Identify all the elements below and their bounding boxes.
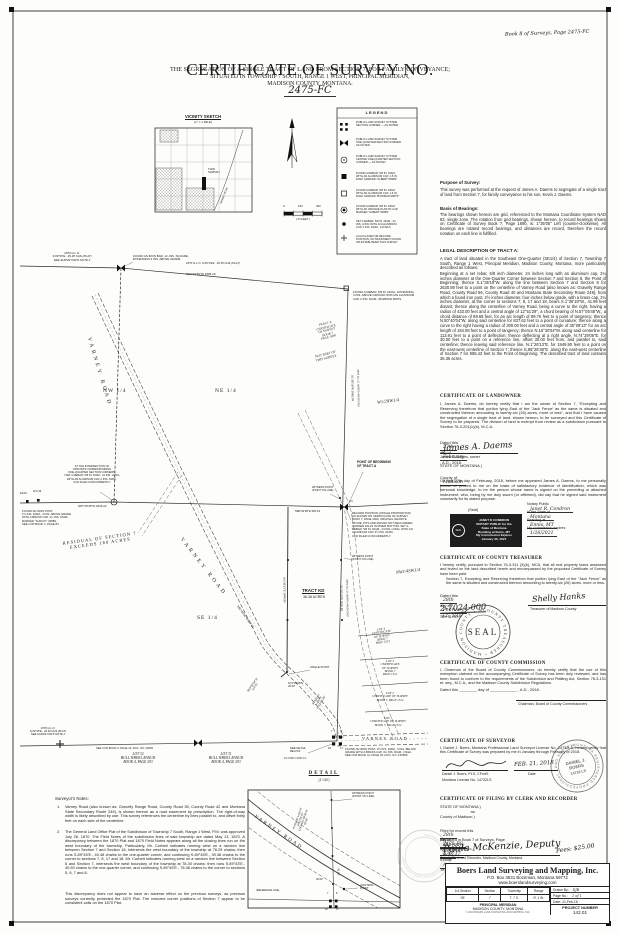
pob-label: POINT OF BEGINNING OF TRACT A — [357, 461, 391, 468]
notary-stamp-text: JANET R CONDRON NOTARY PUBLIC for the St… — [468, 519, 520, 542]
company-website: www.boerslandsurveying.com — [446, 880, 609, 887]
legal-intro: A tract of land situated in the Southeas… — [440, 257, 606, 271]
company-name: Boers Land Surveying and Mapping, Inc. — [446, 866, 609, 875]
subtitle-1: THE SEGREGATION OF A SINGLE TRACT OF LAN… — [0, 66, 620, 73]
seal-placeholder-label: (Seal) — [468, 508, 478, 512]
witness-point-label-1: WITNESS POINT (POINT ON LINE) — [312, 486, 333, 492]
treasurer-title: CERTIFICATE OF COUNTY TREASURER — [440, 556, 606, 562]
treasurer-body-1: I hereby certify, pursuant to Section 76… — [440, 563, 606, 576]
detail-drawing — [244, 780, 404, 922]
surveyor-date-rule — [514, 770, 558, 771]
sixteenth-corner-e: E1/16 — [20, 492, 27, 495]
treasurer-seal: COUNTY TREASURER • MADISON COUNTY • MONT… — [0, 0, 510, 659]
val-quarter-section: SE — [447, 895, 479, 902]
landowner-title: CERTIFICATE OF LANDOWNER — [440, 394, 606, 400]
svg-text:DANIEL J. BOERS: DANIEL J. BOERS 14732 LS — [565, 757, 589, 777]
notary-value-handwritten: 1/26/2021 — [527, 531, 557, 537]
filed-pre: Filed for record this — [440, 828, 473, 833]
legend-item-text: FOUND A REBAR, 5/8 IN. DIAM. WITH AN ALU… — [356, 189, 399, 198]
lot2-label: LOT 2 CERTIFICATE OF SURVEY BOOK 7, PAGE… — [372, 692, 408, 702]
sixteenth-corner-w: W 1/16 — [33, 490, 41, 493]
legend-symbols — [340, 123, 348, 241]
found-post-se-note: FOUND AN IRON POST, 2½ INS. DIAM., 4 INS… — [345, 748, 416, 758]
title-block: Boers Land Surveying and Mapping, Inc. P… — [445, 863, 610, 924]
legend-item-text: SET A REBAR, 5/8 IN. DIAM., 24 INS. LONG… — [356, 220, 396, 229]
landowner-signature-label: James A. Daems, owner — [440, 455, 480, 459]
detail-witness-label: WITNESS POINT (POINT ON LINE) — [352, 792, 374, 798]
glo-chains-lower: 1870 G.L.O. NORTH 40.00 CHS — [345, 579, 349, 616]
legend-item-text: FOUND A REBAR, 5/8 IN. DIAM. WITH AN ORA… — [356, 205, 398, 214]
detail-title: DETAIL — [309, 771, 340, 777]
filing-county: County of Madison ) — [440, 815, 475, 820]
scalebar-unit: ( IN FEET ) — [296, 218, 310, 221]
chairman-label: Chairman, Board of County Commissioners — [518, 702, 587, 706]
purpose-body: This survey was performed at the request… — [440, 188, 606, 197]
found-rebar-ne-note: FOUND A REBAR, 5/8 IN. DIAM., EXTENDING … — [353, 291, 414, 301]
lot3-label: LOT 3 CERTIFICATE OF SURVEY BOOK 7 PAGE … — [381, 660, 400, 677]
legend-item-text: FOUND A REBAR, 5/8 IN. DIAM. WITH AN ALU… — [356, 172, 397, 181]
detail-reference-line-label: (REFERENCE LINE) — [256, 890, 279, 893]
basis-body: The bearings shown hereon are grid, refe… — [440, 213, 606, 237]
scalebar-zero: 0 — [283, 205, 285, 208]
tract-kd-area: 36.36 ACRES — [303, 595, 325, 599]
location-table: 1/4-Section Section Township Range SE 7 … — [446, 887, 550, 902]
legend-item-text: PUBLIC LAND SURVEY SYSTEM SECTION CORNER… — [356, 121, 399, 127]
tract-kd-label: TRACT KD — [302, 588, 324, 593]
val-range: R. 1 W. — [528, 895, 550, 902]
col-quarter-section: 1/4-Section — [447, 888, 479, 895]
corner-digit-8: 8 — [340, 730, 342, 733]
surveyor-signature-stroke — [446, 761, 506, 768]
date-label: Date: — [553, 900, 561, 904]
section-line-upper-bearing: S1°36'19"W 2662.09 — [350, 375, 354, 401]
project-number-value: 142.01 — [551, 910, 609, 915]
aliquot-e2ne4: E1/2NE1/4NE1/4 — [284, 757, 306, 761]
surveyor-license: Montana License No. 14732LS — [442, 778, 491, 782]
lot1-label: LOT 1 CERTIFICATE OF SURVEY BOOK 7, PAGE… — [370, 717, 406, 727]
lot4-label: LOT 4 CERTIFICATE OF SURVEY BOOK 7 PAGE … — [371, 627, 392, 646]
surveyor-seal-ring-text: MONTANA REGISTERED PROFESSIONAL LAND SUR… — [0, 9, 604, 909]
commission-title: CERTIFICATE OF COUNTY COMMISSION — [440, 661, 606, 667]
surveyor-title: CERTIFICATE OF SURVEYOR — [440, 739, 606, 745]
legend-item-text: CALCULATED OR RECORD POSITION, NO MONUME… — [356, 235, 401, 244]
page-no-label: Page No.: — [553, 894, 568, 898]
vicinity-sketch-drawing — [155, 128, 252, 212]
date-value: 21-Feb-18 — [562, 900, 578, 904]
quarter-label-se: SE 1/4 — [197, 615, 218, 621]
page-no-value: 1 of 1 — [569, 894, 585, 899]
scalebar-mid: 150 — [298, 205, 303, 208]
clerk-signature-label: County Clerk and Recorder, Madison Count… — [440, 857, 522, 861]
col-section: Section — [479, 888, 501, 895]
subtitle-2: SITUATED IN TOWNSHIP 7 SOUTH, RANGE 1 WE… — [0, 74, 620, 81]
note-2-number: 2. — [57, 830, 60, 835]
surveyor-signature-rule — [442, 770, 508, 771]
surveyor-body: I, Daniel J. Boers, Montana Professional… — [440, 746, 606, 755]
drawn-by-value: DJB — [570, 888, 583, 893]
detail-dist-3000: 30.00' — [316, 878, 323, 881]
surveyor-date-label: Date — [528, 772, 536, 776]
filing-title: CERTIFICATE OF FILING BY CLERK AND RECOR… — [440, 797, 606, 803]
svg-text:MONTANA REGISTERED PROFESSIONA: MONTANA REGISTERED PROFESSIONAL LAND SUR… — [0, 9, 604, 909]
varney-road-label-east: VARNEY ROAD — [362, 737, 408, 742]
corner-digit-18: 18 — [328, 747, 331, 750]
notary-stamp: SEAL JANET R CONDRON NOTARY PUBLIC for t… — [450, 514, 522, 547]
detail-dist-4199: 41.99' — [337, 869, 340, 876]
survey-sheet: COUNTY TREASURER • MADISON COUNTY • MONT… — [0, 0, 620, 934]
tax-id-label: TAX ID NO. — [440, 615, 459, 619]
pob-record-note: RECORD POSITION (SINGLE PROPORTION) AS S… — [352, 512, 413, 538]
witness-point-label-2: WITNESS POINT (POINT ON LINE) — [352, 555, 373, 561]
subtitle-3: MADISON COUNTY, MONTANA. — [0, 81, 620, 88]
north-arrow-icon — [287, 118, 297, 168]
glo-note-nw: 1870 G.L.O. S.89°45'E., 39.38 CHS (PLAT)… — [52, 252, 91, 262]
detail-corner-digit-8: 8 — [336, 893, 337, 896]
state-line: STATE OF MONTANA ) — [440, 464, 482, 469]
chairman-signature-rule — [516, 700, 606, 701]
detail-control-label: CONTROL POINT — [360, 884, 374, 890]
detail-corner-digit-18: 18 — [325, 909, 328, 912]
quarter-corner-tag: 1/4 — [349, 500, 353, 503]
note-2-text: The General Land Office Plat of the Subd… — [65, 830, 245, 875]
vicinity-scale: (1" = 1 MILE) — [194, 121, 212, 124]
glo-chains-upper: 1870 G.L.O. NORTH 40.00 CHS — [356, 369, 360, 406]
found-iron-post-w-note: FOUND AN IRON POST, 1½ INS. DIAM., 3 INS… — [22, 510, 71, 526]
treasurer-signature-label: Treasurer of Madison County — [530, 607, 576, 611]
treasurer-seal-center-text: SEAL — [468, 627, 499, 637]
col-township: Township — [501, 888, 528, 895]
scale-bar — [284, 211, 322, 217]
ccr-note-sw: SEE CCR BOOK 6, PAGE 19, DOC. NO. 06000 — [96, 747, 153, 750]
surveyor-signature-label: Daniel J. Boers, PLS, CFedS — [442, 772, 488, 776]
val-section: 7 — [479, 895, 501, 902]
see-detail-label: SEE DETAIL BELOW — [290, 747, 306, 753]
angle-point-label: ANGLE POINT — [310, 666, 329, 669]
ew-centerline-bearing-east: S88°26'38"E 955.43 — [295, 510, 320, 513]
detail-corner-digit-7: 7 — [327, 893, 328, 896]
note-1-number: 1. — [57, 805, 60, 810]
notes-title: Surveyor's Notes: — [55, 796, 89, 801]
legend-item-text: PUBLIC LAND SURVEY SYSTEM CENTER ONE-QUA… — [356, 155, 400, 164]
lot32-label: LOT 32 BULL WHEEL RANCH BOOK 4, PAGE 293 — [121, 752, 155, 764]
notary-stamp-seal-icon: SEAL — [452, 524, 465, 537]
basis-title: Basis of Bearings: — [440, 206, 479, 211]
dated-pre: Dated this — [440, 593, 458, 598]
legal-body: Beginning at a set rebar, 5/8 inch diame… — [440, 272, 606, 362]
purpose-title: Purpose of Survey: — [440, 180, 480, 185]
lot31-label: LOT 31 BULL WHEEL RANCH BOOK 4, PAGE 293 — [209, 752, 243, 764]
note-closing-text: This discrepancy does not appear to have… — [65, 892, 245, 906]
tract-west-line-bearing: N1°26'13"E 1949.90 — [282, 577, 286, 602]
glo-note-ne: 1870 G.L.O. S.89°43'E., 40.50 CHS (PLAT) — [186, 262, 240, 265]
quarter-label-ne: NE 1/4 — [215, 388, 237, 394]
corner-digit-7: 7 — [331, 730, 333, 733]
found-iron-bar-note: FOUND AN IRON BAR, 1¼ INS. SQUARE, EXTEN… — [133, 255, 189, 262]
landowner-signature-rule — [440, 453, 518, 454]
commission-dated: Dated this ________ day of ____________ … — [440, 688, 540, 693]
center-quarter-note: AT THE INTERSECTION OF OPPOSITE CORRESPO… — [64, 465, 120, 484]
vicinity-this-survey-label: THIS SURVEY — [208, 168, 220, 175]
landowner-body: I, James A. Daems, do hereby certify tha… — [440, 402, 606, 429]
legend-title: LEGEND — [366, 111, 389, 116]
tie-bearing-label: N74°29'06"E 30.00' — [288, 682, 303, 688]
copyright-line: © 2018 BOERS LAND SURVEYING AND MAPPING,… — [446, 911, 550, 914]
ew-centerline-bearing: N87°25'35"W 2646.22 — [78, 505, 106, 508]
detail-scale: (1"=30') — [318, 779, 329, 783]
notary-field-4: My commission expires 1/26/2021 — [527, 522, 609, 536]
north-line-bearing: N87°19'59"W 1995.20 — [186, 273, 216, 276]
tax-id-handwritten: 2-7024-000 — [440, 602, 486, 614]
detail-corner-digit-17: 17 — [336, 909, 339, 912]
corner-digit-17: 17 — [340, 747, 343, 750]
col-range: Range — [528, 888, 550, 895]
scalebar-full: 300 — [316, 205, 321, 208]
section-line-lower-bearing: S1°36'19"W 2630.89 — [339, 585, 343, 611]
notary-label: My commission expires — [527, 526, 565, 530]
legend-item-text: PUBLIC LAND SURVEY SYSTEM ONE-QUARTER SE… — [356, 138, 401, 147]
treasurer-body-2: Section 7, Excepting and Reserving there… — [446, 577, 606, 586]
note-1-text: Varney Road (also known as: Gravelly Ran… — [65, 805, 245, 823]
commission-body: I, Chairman of the Board of County Commi… — [440, 668, 606, 686]
treasurer-signature-rule — [528, 605, 606, 606]
legal-title: LEGAL DESCRIPTION OF TRACT A: — [440, 248, 519, 253]
glo-note-sw: 1870 G.L.O. S.89°45'E., 40.48 CHS (PLAT)… — [30, 727, 66, 736]
val-township: T. 7 S. — [501, 895, 528, 902]
drawn-by-label: Drawn By: — [553, 888, 569, 892]
surveyor-seal: MONTANA REGISTERED PROFESSIONAL LAND SUR… — [0, 8, 608, 911]
